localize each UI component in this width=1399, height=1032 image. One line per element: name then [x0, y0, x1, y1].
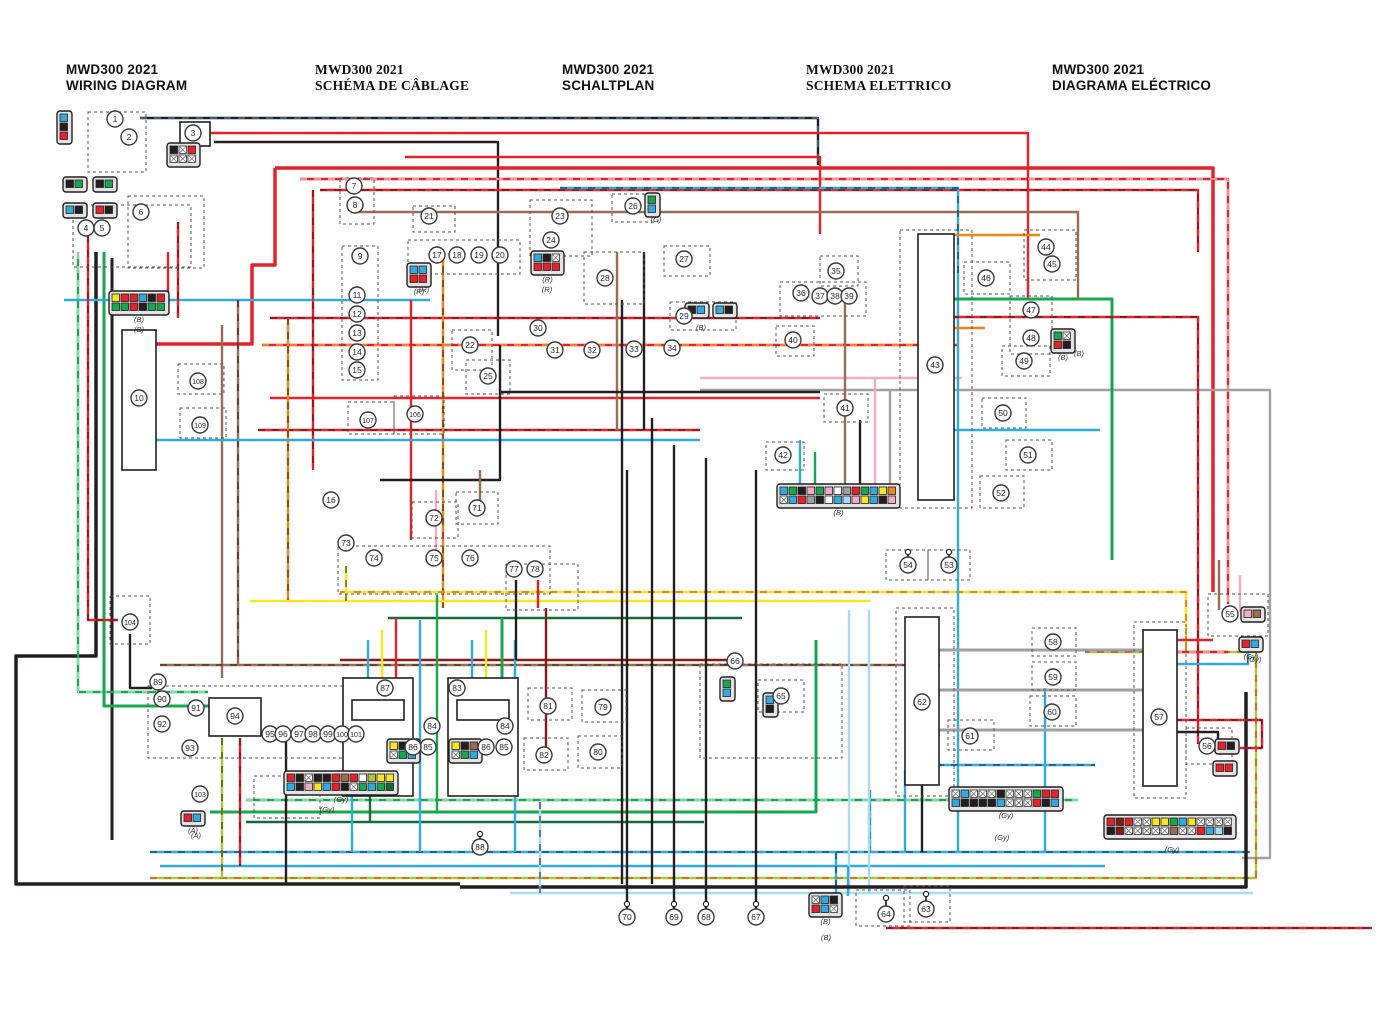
connector-pin — [1042, 790, 1050, 798]
component-number: 57 — [1154, 712, 1164, 722]
connector-pin — [105, 206, 113, 214]
connector-pin — [359, 783, 367, 791]
component-number: 101 — [350, 732, 362, 739]
component-number: 4 — [84, 223, 89, 233]
connector-pin — [843, 496, 851, 504]
component-group-box — [1024, 230, 1076, 280]
connector-pin — [879, 487, 887, 495]
connector-pin — [825, 487, 833, 495]
component-number: 63 — [921, 904, 931, 914]
connector-pin — [66, 180, 74, 188]
connector-pin — [961, 799, 969, 807]
connector-pin — [148, 294, 156, 302]
color-code-label: (G) — [651, 215, 662, 224]
component-number: 54 — [903, 560, 913, 570]
component-number: 52 — [996, 488, 1006, 498]
connector-pin — [60, 123, 68, 131]
component-number: 70 — [622, 912, 632, 922]
wiring-diagram-page: { "doc": {"model": "MWD300 2021", "kind"… — [0, 0, 1399, 1032]
connector-pin — [1227, 742, 1235, 750]
color-code-label: (R) — [542, 285, 553, 294]
device-block — [1143, 630, 1177, 786]
component-number: 89 — [153, 677, 163, 687]
connector-label: (Gy) — [999, 811, 1014, 820]
connector-pin — [60, 132, 68, 140]
component-number: 47 — [1026, 305, 1036, 315]
connector-pin — [1218, 742, 1226, 750]
component-number: 5 — [100, 223, 105, 233]
component-number: 19 — [474, 250, 484, 260]
connector-pin — [543, 263, 551, 271]
component-number: 88 — [475, 842, 485, 852]
component-number: 14 — [352, 347, 362, 357]
component-number: 9 — [358, 251, 363, 261]
component-number: 8 — [353, 200, 358, 210]
component-group-box — [584, 252, 644, 304]
component-number: 86 — [408, 742, 418, 752]
connector-pin — [1224, 827, 1232, 835]
connector-pin — [543, 254, 551, 262]
connector-pin — [870, 487, 878, 495]
component-number: 13 — [352, 328, 362, 338]
connector-pin — [534, 254, 542, 262]
connector-pin — [390, 742, 398, 750]
component-number: 40 — [788, 335, 798, 345]
connector-pin — [648, 205, 656, 213]
connector-pin — [1107, 827, 1115, 835]
component-number: 74 — [369, 553, 379, 563]
connector-pin — [1170, 818, 1178, 826]
connector-pin — [1251, 640, 1259, 648]
connector-pin — [332, 774, 340, 782]
connector-pin — [952, 799, 960, 807]
component-number: 83 — [452, 683, 462, 693]
connector-pin — [861, 496, 869, 504]
component-number: 56 — [1202, 741, 1212, 751]
connector-label: (B) — [1058, 353, 1069, 362]
wire — [560, 188, 958, 280]
component-number: 22 — [465, 340, 475, 350]
connector-pin — [1125, 818, 1133, 826]
component-number: 36 — [796, 288, 806, 298]
component-number: 42 — [778, 450, 788, 460]
component-number: 35 — [831, 266, 841, 276]
connector-pin — [1170, 827, 1178, 835]
connector-pin — [112, 294, 120, 302]
connector-pin — [323, 783, 331, 791]
connector-pin — [341, 783, 349, 791]
connector-pin — [1253, 610, 1261, 618]
connector-pin — [648, 196, 656, 204]
connector-pin — [157, 303, 165, 311]
connector-pin — [314, 783, 322, 791]
component-number: 108 — [192, 379, 204, 386]
connector-pin — [798, 496, 806, 504]
connector-pin — [305, 783, 313, 791]
connector-pin — [888, 496, 896, 504]
connector-pin — [75, 180, 83, 188]
connector-pin — [723, 689, 731, 697]
wire — [380, 345, 500, 480]
connector-pin — [184, 814, 192, 822]
connector-pin — [296, 774, 304, 782]
connector-pin — [1116, 827, 1124, 835]
wire — [320, 190, 1198, 252]
component-number: 75 — [429, 553, 439, 563]
connector-pin — [861, 487, 869, 495]
component-number: 76 — [465, 553, 475, 563]
connector-label: (B) — [821, 917, 832, 926]
component-number: 24 — [546, 235, 556, 245]
connector-pin — [1206, 827, 1214, 835]
color-code-label: (R) — [419, 285, 430, 294]
connector-pin — [552, 263, 560, 271]
component-number: 67 — [751, 912, 761, 922]
connector-pin — [66, 206, 74, 214]
component-number: 45 — [1047, 259, 1057, 269]
component-number: 25 — [483, 371, 493, 381]
component-number: 29 — [679, 311, 689, 321]
connector-pin — [410, 275, 418, 283]
component-number: 87 — [380, 683, 390, 693]
connector-pin — [725, 306, 733, 314]
connector-pin — [821, 896, 829, 904]
connector-pin — [825, 496, 833, 504]
connector-pin — [96, 206, 104, 214]
component-number: 103 — [194, 792, 206, 799]
connector-pin — [148, 303, 156, 311]
component-number: 32 — [587, 345, 597, 355]
connector-pin — [766, 705, 774, 713]
component-number: 50 — [998, 408, 1008, 418]
component-number: 58 — [1048, 637, 1058, 647]
component-group-box — [73, 205, 191, 267]
component-number: 61 — [965, 731, 975, 741]
connector-pin — [723, 680, 731, 688]
color-code-label: (Gy) — [1165, 845, 1180, 854]
connector-pin — [332, 783, 340, 791]
wire-stripe — [560, 188, 958, 280]
ground-terminal — [703, 901, 708, 906]
connector-pin — [697, 306, 705, 314]
connector-pin — [139, 294, 147, 302]
component-number: 48 — [1026, 333, 1036, 343]
connector-pin — [780, 487, 788, 495]
connector-pin — [1152, 818, 1160, 826]
component-number: 51 — [1023, 450, 1033, 460]
component-number: 33 — [629, 344, 639, 354]
ground-terminal — [883, 895, 888, 900]
component-number: 6 — [139, 207, 144, 217]
wire — [156, 168, 275, 344]
connector-pin — [359, 774, 367, 782]
component-number: 46 — [981, 273, 991, 283]
connector-pin — [157, 294, 165, 302]
connector-pin — [323, 774, 331, 782]
component-number: 84 — [427, 721, 437, 731]
connector-pin — [410, 266, 418, 274]
connector-label: (B) — [134, 315, 145, 324]
ground-terminal — [923, 891, 928, 896]
connector-pin — [341, 774, 349, 782]
wire — [104, 252, 209, 706]
component-number: 82 — [539, 750, 549, 760]
wire — [275, 168, 1213, 592]
connector-pin — [870, 496, 878, 504]
component-number: 17 — [432, 250, 442, 260]
component-number: 37 — [815, 291, 825, 301]
component-number: 43 — [930, 360, 940, 370]
connector-pin — [386, 783, 394, 791]
connector-pin — [821, 905, 829, 913]
connector-pin — [296, 783, 304, 791]
connector-pin — [1063, 341, 1071, 349]
component-number: 97 — [294, 729, 304, 739]
component-number: 96 — [278, 729, 288, 739]
component-number: 68 — [701, 912, 711, 922]
connector-pin — [997, 799, 1005, 807]
connector-pin — [121, 294, 129, 302]
component-number: 31 — [550, 345, 560, 355]
connector-pin — [807, 496, 815, 504]
component-number: 41 — [840, 403, 850, 413]
component-number: 53 — [944, 560, 954, 570]
component-number: 34 — [667, 343, 677, 353]
component-number: 109 — [194, 423, 206, 430]
component-number: 85 — [499, 742, 509, 752]
color-code-label: (A) — [191, 831, 202, 840]
component-number: 10 — [134, 393, 144, 403]
device-block — [457, 700, 509, 720]
connector-pin — [139, 303, 147, 311]
component-number: 38 — [830, 291, 840, 301]
connector-pin — [1107, 818, 1115, 826]
connector-pin — [314, 774, 322, 782]
connector-pin — [1179, 818, 1187, 826]
component-number: 66 — [730, 656, 740, 666]
component-number: 30 — [533, 323, 543, 333]
component-number: 59 — [1048, 672, 1058, 682]
component-number: 11 — [353, 290, 362, 300]
wiring-diagram-canvas: (B)(B)(Gy)(Gy)(B)(R)(R)(Gy)(A)(B)1234567… — [0, 0, 1399, 1032]
connector-pin — [377, 783, 385, 791]
connector-pin — [470, 751, 478, 759]
component-number: 85 — [423, 742, 433, 752]
component-number: 20 — [495, 250, 505, 260]
connector-pin — [386, 774, 394, 782]
connector-pin — [988, 799, 996, 807]
component-number: 99 — [323, 729, 333, 739]
component-number: 49 — [1019, 356, 1029, 366]
connector-pin — [60, 114, 68, 122]
component-number: 64 — [881, 909, 891, 919]
component-number: 65 — [776, 691, 786, 701]
connector-pin — [1244, 610, 1252, 618]
connector-pin — [75, 206, 83, 214]
connector-pin — [96, 180, 104, 188]
connector-pin — [716, 306, 724, 314]
connector-pin — [798, 487, 806, 495]
component-number: 7 — [352, 181, 357, 191]
ground-terminal — [753, 901, 758, 906]
connector-pin — [1051, 790, 1059, 798]
connector-pin — [879, 496, 887, 504]
connector-pin — [1116, 818, 1124, 826]
component-number: 3 — [191, 128, 196, 138]
wire — [460, 692, 1246, 887]
ground-terminal — [624, 901, 629, 906]
connector-pin — [1197, 827, 1205, 835]
connector-pin — [470, 742, 478, 750]
color-code-label: (B) — [1074, 349, 1085, 358]
component-number: 28 — [600, 273, 610, 283]
connector-pin — [130, 294, 138, 302]
component-number: 62 — [917, 697, 927, 707]
connector-pin — [979, 799, 987, 807]
connector-label: (Gy) — [334, 795, 349, 804]
component-number: 27 — [679, 254, 689, 264]
connector-pin — [1033, 790, 1041, 798]
connector-pin — [961, 790, 969, 798]
connector-pin — [461, 742, 469, 750]
component-number: 93 — [185, 743, 195, 753]
component-number: 60 — [1047, 707, 1057, 717]
connector-pin — [816, 496, 824, 504]
component-number: 44 — [1041, 242, 1051, 252]
connector-pin — [121, 303, 129, 311]
connector-pin — [1042, 799, 1050, 807]
connector-pin — [1225, 764, 1233, 772]
connector-pin — [368, 774, 376, 782]
connector-pin — [843, 487, 851, 495]
component-number: 78 — [530, 564, 540, 574]
connector-pin — [368, 783, 376, 791]
color-code-label: (B) — [821, 933, 832, 942]
component-number: 79 — [598, 702, 608, 712]
component-number: 73 — [341, 538, 351, 548]
connector-pin — [997, 790, 1005, 798]
connector-pin — [789, 496, 797, 504]
component-number: 1 — [113, 114, 118, 124]
connector-pin — [1033, 799, 1041, 807]
component-number: 15 — [352, 365, 362, 375]
component-number: 39 — [844, 291, 854, 301]
component-number: 81 — [543, 701, 553, 711]
component-number: 21 — [424, 211, 434, 221]
connector-label: (R) — [542, 275, 553, 284]
connector-pin — [419, 266, 427, 274]
connector-pin — [112, 303, 120, 311]
connector-pin — [350, 774, 358, 782]
connector-pin — [452, 742, 460, 750]
component-number: 95 — [265, 729, 275, 739]
connector-pin — [287, 774, 295, 782]
component-number: 80 — [593, 747, 603, 757]
component-number: 84 — [500, 721, 510, 731]
color-code-label: (B) — [134, 325, 145, 334]
component-number: 100 — [336, 732, 348, 739]
connector-pin — [287, 783, 295, 791]
connector-pin — [807, 487, 815, 495]
color-code-label: (Gy) — [320, 805, 335, 814]
connector-pin — [170, 146, 178, 154]
color-code-label: (Gy) — [995, 833, 1010, 842]
connector-pin — [193, 814, 201, 822]
connector-pin — [1054, 341, 1062, 349]
connector-pin — [830, 896, 838, 904]
connector-pin — [1051, 799, 1059, 807]
connector-pin — [834, 487, 842, 495]
component-number: 72 — [429, 513, 439, 523]
connector-pin — [1054, 332, 1062, 340]
color-code-label: (B) — [696, 323, 707, 332]
component-number: 16 — [326, 495, 336, 505]
component-number: 94 — [230, 711, 240, 721]
component-number: 86 — [481, 742, 491, 752]
connector-pin — [1188, 818, 1196, 826]
component-number: 23 — [555, 211, 565, 221]
connector-pin — [130, 303, 138, 311]
connector-pin — [834, 496, 842, 504]
connector-pin — [419, 275, 427, 283]
component-number: 106 — [409, 412, 421, 419]
device-block — [352, 700, 404, 720]
wire — [130, 634, 152, 688]
connector-pin — [1242, 640, 1250, 648]
component-number: 71 — [472, 503, 482, 513]
component-number: 98 — [308, 729, 318, 739]
connector-pin — [1161, 818, 1169, 826]
connector-pin — [105, 180, 113, 188]
connector-pin — [816, 487, 824, 495]
component-number: 107 — [362, 418, 374, 425]
ground-terminal — [671, 901, 676, 906]
connector-pin — [789, 487, 797, 495]
connector-pin — [852, 496, 860, 504]
ground-terminal — [477, 831, 482, 836]
component-number: 2 — [127, 132, 132, 142]
component-number: 26 — [628, 201, 638, 211]
component-number: 18 — [452, 250, 462, 260]
connector-pin — [970, 799, 978, 807]
connector-pin — [1215, 827, 1223, 835]
connector-pin — [534, 263, 542, 271]
component-number: 69 — [669, 912, 679, 922]
component-number: 104 — [124, 620, 136, 627]
connector-pin — [888, 487, 896, 495]
component-number: 12 — [352, 309, 362, 319]
ground-terminal — [946, 549, 951, 554]
connector-pin — [188, 146, 196, 154]
connector-pin — [852, 487, 860, 495]
component-number: 91 — [191, 703, 201, 713]
wire-stripe — [320, 190, 1198, 252]
color-code-label: (Gy) — [1247, 655, 1262, 664]
ground-terminal — [905, 549, 910, 554]
connector-pin — [377, 774, 385, 782]
connector-pin — [1216, 764, 1224, 772]
connector-label: (B) — [834, 508, 845, 517]
component-number: 77 — [509, 564, 519, 574]
connector-pin — [399, 751, 407, 759]
component-number: 90 — [157, 694, 167, 704]
component-number: 92 — [157, 719, 167, 729]
connector-pin — [461, 751, 469, 759]
component-number: 55 — [1225, 609, 1235, 619]
connector-pin — [812, 905, 820, 913]
